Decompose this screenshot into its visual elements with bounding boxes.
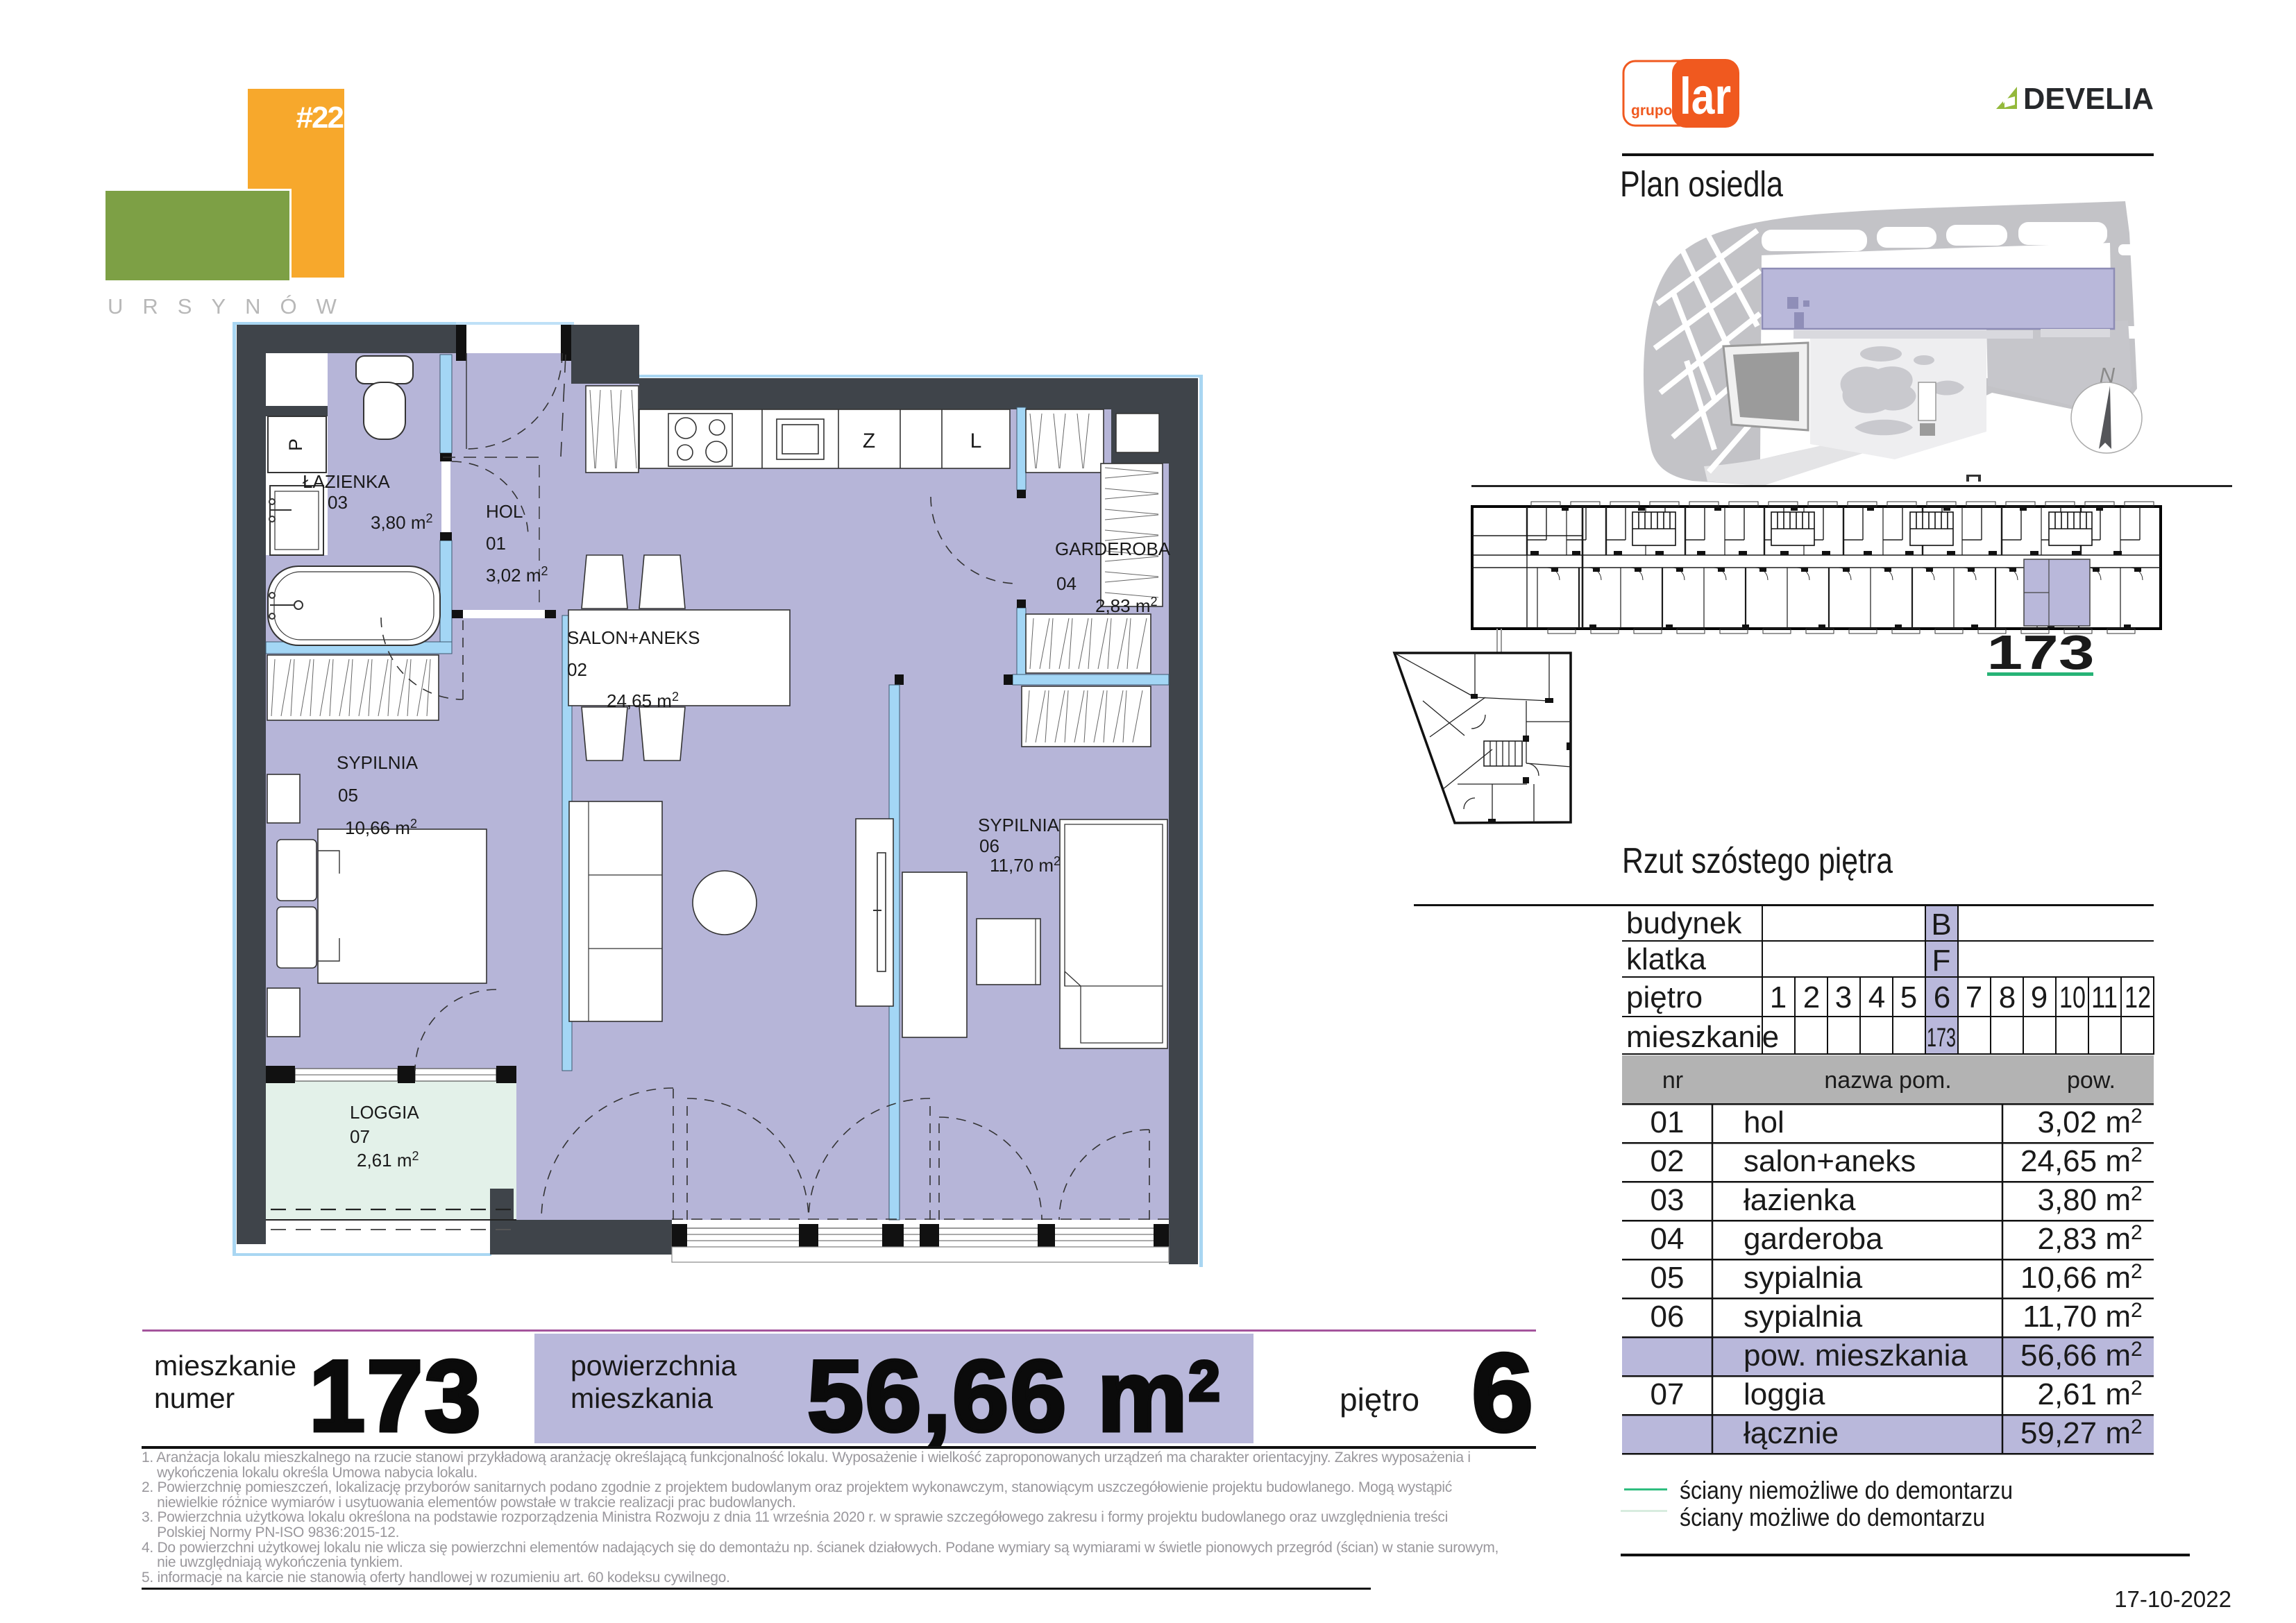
svg-text:173: 173 [1927,1023,1956,1053]
svg-text:2,61 m: 2,61 m [2037,1377,2131,1411]
svg-text:2: 2 [2131,1221,2143,1244]
svg-text:SYPILNIA: SYPILNIA [337,752,419,773]
svg-text:2: 2 [2131,1260,2143,1283]
svg-text:grupo: grupo [1631,103,1672,119]
svg-text:02: 02 [1651,1144,1685,1178]
svg-text:3,80 m2: 3,80 m2 [371,511,433,533]
svg-text:2: 2 [2131,1377,2143,1400]
svg-text:sypialnia: sypialnia [1744,1261,1863,1295]
svg-text:B: B [1931,908,1951,942]
svg-text:11,70 m: 11,70 m [2023,1300,2131,1334]
svg-text:2: 2 [2131,1338,2143,1361]
svg-text:sypialnia: sypialnia [1744,1300,1863,1334]
svg-text:8: 8 [1999,980,2016,1014]
svg-text:2: 2 [2131,1416,2143,1438]
svg-text:mieszkanie: mieszkanie [1626,1020,1779,1054]
svg-text:2: 2 [1803,980,1820,1014]
svg-text:loggia: loggia [1744,1377,1825,1411]
svg-text:10,66 m2: 10,66 m2 [345,817,417,838]
svg-text:24,65 m2: 24,65 m2 [607,690,679,711]
svg-text:2: 2 [2131,1182,2143,1205]
svg-text:klatka: klatka [1626,942,1706,976]
svg-text:ściany niemożliwe do demontarz: ściany niemożliwe do demontarzu [1680,1476,2013,1504]
svg-text:łącznie: łącznie [1744,1416,1839,1450]
svg-text:lar: lar [1680,67,1731,125]
svg-text:3,02 m: 3,02 m [2037,1105,2131,1139]
svg-text:59,27 m: 59,27 m [2020,1416,2131,1450]
svg-text:hol: hol [1744,1105,1784,1139]
svg-text:2: 2 [2131,1144,2143,1166]
svg-text:03: 03 [328,492,348,513]
svg-text:L: L [970,430,982,452]
svg-text:3,02 m2: 3,02 m2 [486,564,548,586]
svg-text:05: 05 [1651,1261,1685,1295]
svg-text:garderoba: garderoba [1744,1222,1883,1256]
svg-text:3: 3 [1835,980,1852,1014]
svg-text:pow.: pow. [2067,1067,2116,1094]
svg-text:F: F [1932,944,1951,978]
svg-text:1: 1 [1770,980,1787,1014]
svg-text:2,83 m: 2,83 m [2037,1222,2131,1256]
svg-text:5: 5 [1900,980,1917,1014]
svg-text:LOGGIA: LOGGIA [350,1102,419,1123]
svg-text:07: 07 [350,1126,370,1147]
svg-text:24,65 m: 24,65 m [2020,1144,2131,1178]
svg-text:06: 06 [979,835,999,856]
svg-text:SALON+ANEKS: SALON+ANEKS [567,627,700,648]
svg-text:N: N [2100,363,2116,387]
svg-text:10,66 m: 10,66 m [2020,1261,2131,1295]
svg-text:pow. mieszkania: pow. mieszkania [1744,1339,1968,1373]
svg-text:2: 2 [2131,1105,2143,1128]
svg-text:budynek: budynek [1626,906,1742,940]
svg-text:6: 6 [1934,980,1950,1014]
svg-text:9: 9 [2031,980,2048,1014]
svg-text:ściany możliwe do demontarzu: ściany możliwe do demontarzu [1680,1503,1985,1531]
svg-text:łazienka: łazienka [1744,1183,1856,1217]
svg-text:nazwa pom.: nazwa pom. [1824,1067,1951,1094]
svg-text:nr: nr [1662,1067,1683,1094]
svg-text:salon+aneks: salon+aneks [1744,1144,1916,1178]
svg-text:17-10-2022: 17-10-2022 [2114,1586,2231,1612]
svg-text:11: 11 [2091,980,2118,1014]
svg-text:HOL: HOL [486,501,523,522]
svg-text:2,61 m2: 2,61 m2 [357,1149,419,1171]
svg-text:173: 173 [1987,625,2095,679]
svg-text:piętro: piętro [1626,980,1703,1014]
svg-text:56,66 m: 56,66 m [2020,1339,2131,1373]
svg-text:7: 7 [1966,980,1982,1014]
svg-text:06: 06 [1651,1300,1685,1334]
svg-text:01: 01 [486,533,506,554]
svg-text:Rzut szóstego piętra: Rzut szóstego piętra [1622,841,1893,881]
svg-text:07: 07 [1651,1377,1685,1411]
svg-text:05: 05 [338,785,358,806]
svg-text:11,70 m2: 11,70 m2 [990,854,1061,876]
svg-text:Z: Z [863,430,875,452]
svg-text:03: 03 [1651,1183,1685,1217]
svg-text:2: 2 [2131,1299,2143,1322]
svg-text:10: 10 [2059,980,2086,1014]
svg-text:SYPILNIA: SYPILNIA [978,815,1060,835]
svg-text:2,83 m2: 2,83 m2 [1095,595,1158,616]
svg-text:Plan osiedla: Plan osiedla [1620,164,1783,205]
svg-text:04: 04 [1651,1222,1685,1256]
svg-text:GARDEROBA: GARDEROBA [1055,538,1171,559]
svg-text:DEVELIA: DEVELIA [2023,82,2154,116]
svg-text:3,80 m: 3,80 m [2037,1183,2131,1217]
svg-text:P: P [285,439,306,451]
svg-text:12: 12 [2125,980,2151,1014]
svg-text:04: 04 [1056,573,1077,594]
svg-text:01: 01 [1651,1105,1685,1139]
svg-text:ŁAZIENKA: ŁAZIENKA [303,471,390,492]
svg-text:02: 02 [567,659,587,680]
svg-text:4: 4 [1868,980,1885,1014]
